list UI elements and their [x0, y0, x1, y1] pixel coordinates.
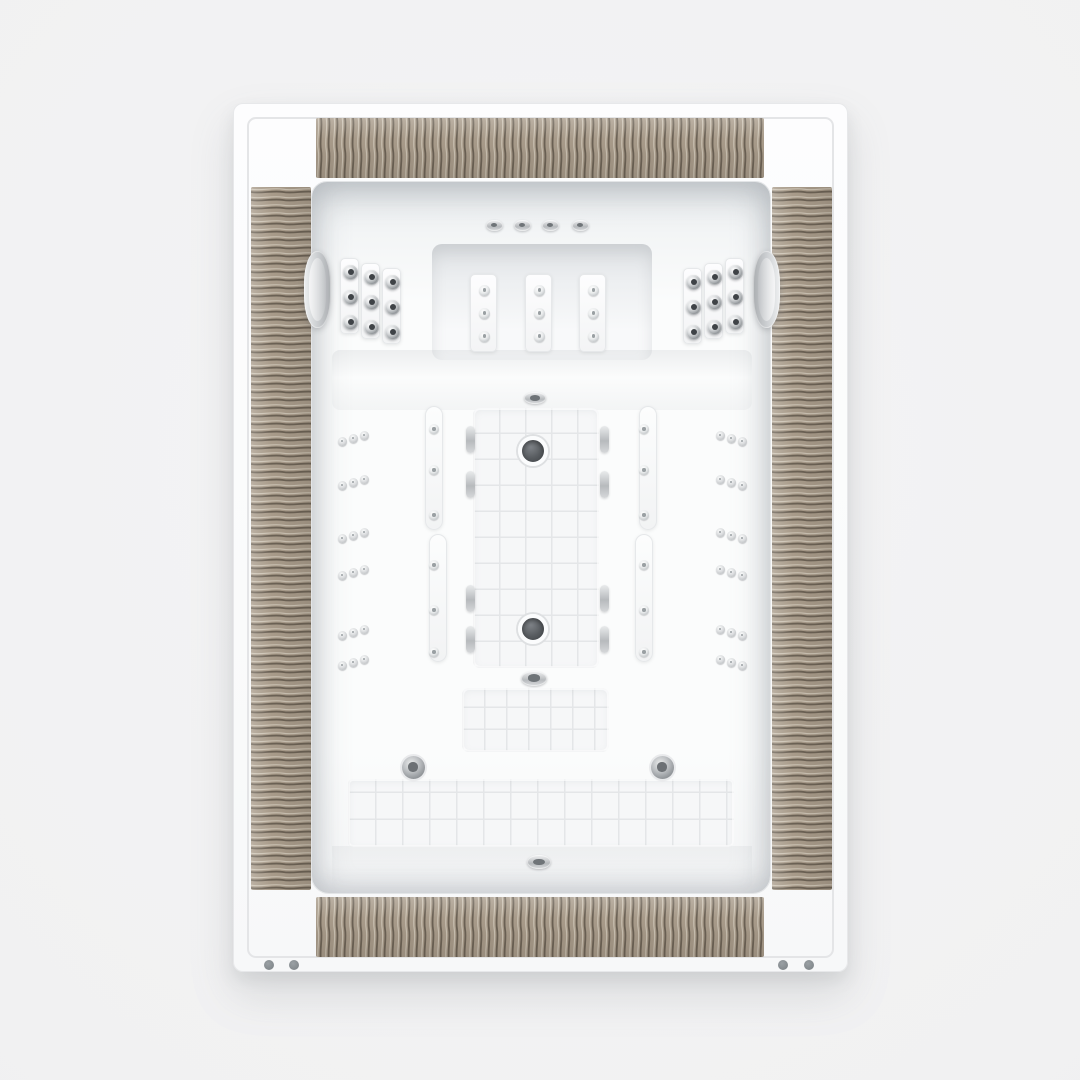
jet-center	[642, 608, 645, 611]
jet-center	[741, 664, 744, 667]
jet-center	[719, 478, 722, 481]
shoulder-jet	[364, 270, 379, 285]
jet-center	[390, 329, 396, 335]
jet-center	[741, 574, 744, 577]
basin	[311, 181, 771, 894]
mounting-dot	[804, 960, 814, 970]
back-jet-strip	[470, 274, 497, 352]
shoulder-panel-left-strip	[361, 263, 380, 339]
right-wall-jet	[716, 565, 725, 574]
jet-center	[390, 279, 396, 285]
foot-end-shading	[332, 846, 752, 892]
deck-panel-right	[772, 187, 832, 890]
left-wall-jet	[360, 528, 369, 537]
jet-center	[691, 279, 697, 285]
jet-center	[432, 563, 435, 566]
left-wall-jet	[349, 628, 358, 637]
jet-center	[352, 534, 355, 537]
shoulder-jet	[728, 290, 743, 305]
jet-center	[483, 288, 487, 292]
jet-center	[592, 334, 596, 338]
right-wall-jet	[738, 571, 747, 580]
mounting-dot	[778, 960, 788, 970]
jet-center	[719, 568, 722, 571]
back-jet	[534, 331, 545, 342]
back-jet-strip	[525, 274, 552, 352]
floor-trim-pill	[600, 585, 609, 612]
shoulder-jet	[385, 325, 400, 340]
right-wall-jet	[727, 434, 736, 443]
jet-center	[341, 634, 344, 637]
jet-center	[538, 311, 542, 315]
jet-center	[733, 319, 739, 325]
rail-left-lower	[429, 534, 447, 662]
jet-center	[348, 269, 354, 275]
jet-center	[741, 537, 744, 540]
jet-center	[363, 434, 366, 437]
jet-center	[730, 481, 733, 484]
right-wall-jet	[727, 658, 736, 667]
jet-center	[432, 650, 435, 653]
left-wall-jet	[360, 655, 369, 664]
rail-jet	[639, 605, 649, 615]
jet-center	[432, 427, 435, 430]
jet-center	[719, 628, 722, 631]
shoulder-jet	[343, 290, 358, 305]
jet-center	[390, 304, 396, 310]
jet-center	[519, 223, 526, 227]
shoulder-jet	[707, 320, 722, 335]
deck-panel-left	[251, 187, 311, 890]
shoulder-jet	[728, 315, 743, 330]
headrest-pad	[309, 258, 326, 321]
jet-center	[657, 762, 666, 771]
left-wall-jet	[338, 661, 347, 670]
mid-fitting	[521, 671, 547, 686]
floor-trim-pill	[466, 585, 475, 612]
shoulder-jet	[364, 320, 379, 335]
jet-center	[369, 274, 375, 280]
bench-panel	[348, 779, 734, 847]
jet-center	[547, 223, 554, 227]
right-wall-jet	[727, 478, 736, 487]
right-wall-jet	[738, 661, 747, 670]
headrest-pad	[758, 258, 775, 321]
rail-jet	[639, 465, 649, 475]
jet-center	[730, 571, 733, 574]
jet-center	[363, 628, 366, 631]
right-wall-jet	[716, 475, 725, 484]
rail-jet	[429, 465, 439, 475]
shoulder-jet	[364, 295, 379, 310]
back-jet	[588, 308, 599, 319]
jet-center	[538, 288, 542, 292]
product-photo-stage	[0, 0, 1080, 1080]
back-jet	[588, 285, 599, 296]
rail-jet	[429, 510, 439, 520]
headrest-left	[304, 251, 331, 328]
shoulder-jet	[343, 265, 358, 280]
jet-center	[341, 537, 344, 540]
jet-center	[592, 311, 596, 315]
shoulder-jet	[686, 275, 701, 290]
right-wall-jet	[738, 631, 747, 640]
jet-center	[348, 294, 354, 300]
shoulder-jet	[686, 300, 701, 315]
jet-center	[642, 468, 645, 471]
right-wall-jet	[738, 481, 747, 490]
jet-center	[363, 531, 366, 534]
right-wall-jet	[727, 531, 736, 540]
jet-center	[642, 650, 645, 653]
right-wall-jet	[727, 568, 736, 577]
mounting-dot	[264, 960, 274, 970]
jet-center	[712, 274, 718, 280]
jet-center	[352, 481, 355, 484]
jet-center	[691, 329, 697, 335]
shoulder-jet	[385, 300, 400, 315]
floor-trim-pill	[600, 471, 609, 498]
rail-jet	[429, 647, 439, 657]
jet-center	[730, 631, 733, 634]
fitting-center	[528, 674, 541, 681]
jet-center	[341, 664, 344, 667]
jet-center	[352, 437, 355, 440]
jet-center	[719, 531, 722, 534]
shoulder-panel-left-strip	[340, 258, 359, 334]
left-wall-jet	[338, 437, 347, 446]
jet-center	[538, 334, 542, 338]
jet-center	[741, 440, 744, 443]
jet-center	[730, 661, 733, 664]
deck-fitting	[524, 392, 546, 404]
shoulder-panel-right-strip	[725, 258, 744, 334]
rail-jet	[639, 560, 649, 570]
shoulder-panel-right-strip	[683, 268, 702, 344]
back-jet	[588, 331, 599, 342]
back-ledge-jet	[542, 220, 559, 231]
right-wall-jet	[716, 528, 725, 537]
jet-center	[592, 288, 596, 292]
back-jet	[479, 308, 490, 319]
jet-center	[341, 440, 344, 443]
jet-center	[719, 434, 722, 437]
floor-trim-pill	[466, 626, 475, 653]
jet-center	[432, 513, 435, 516]
left-wall-jet	[349, 531, 358, 540]
jet-center	[491, 223, 498, 227]
shoulder-jet	[686, 325, 701, 340]
jet-center	[352, 661, 355, 664]
jet-center	[577, 223, 584, 227]
floor-trim-pill	[600, 626, 609, 653]
left-wall-jet	[349, 568, 358, 577]
jet-center	[352, 631, 355, 634]
jet-center	[642, 513, 645, 516]
right-wall-jet	[716, 655, 725, 664]
rail-jet	[639, 647, 649, 657]
jet-center	[363, 568, 366, 571]
jet-center	[483, 334, 487, 338]
bench-jet	[402, 756, 425, 779]
left-wall-jet	[360, 565, 369, 574]
right-wall-jet	[716, 625, 725, 634]
shoulder-jet	[343, 315, 358, 330]
left-wall-jet	[360, 431, 369, 440]
jet-center	[719, 658, 722, 661]
rail-right-lower	[635, 534, 653, 662]
floor-drain	[518, 614, 548, 644]
left-wall-jet	[349, 478, 358, 487]
right-wall-jet	[727, 628, 736, 637]
jet-center	[432, 468, 435, 471]
jet-center	[483, 311, 487, 315]
front-fitting	[527, 855, 551, 869]
floor-trim-pill	[466, 426, 475, 453]
rail-jet	[639, 424, 649, 434]
jet-center	[432, 608, 435, 611]
jet-center	[691, 304, 697, 310]
deck-panel-bottom	[316, 897, 764, 957]
jet-center	[712, 324, 718, 330]
left-wall-jet	[349, 658, 358, 667]
jet-center	[363, 478, 366, 481]
jet-center	[741, 634, 744, 637]
back-jet	[479, 331, 490, 342]
shoulder-jet	[707, 270, 722, 285]
rail-jet	[429, 560, 439, 570]
back-ledge-jet	[572, 220, 589, 231]
shoulder-jet	[385, 275, 400, 290]
back-ledge-jet	[514, 220, 531, 231]
shoulder-panel-right-strip	[704, 263, 723, 339]
left-wall-jet	[360, 475, 369, 484]
left-wall-jet	[338, 534, 347, 543]
left-wall-jet	[349, 434, 358, 443]
jet-center	[712, 299, 718, 305]
rail-jet	[639, 510, 649, 520]
shoulder-jet	[707, 295, 722, 310]
jet-center	[642, 427, 645, 430]
back-jet	[534, 285, 545, 296]
left-wall-jet	[338, 481, 347, 490]
mounting-dot	[289, 960, 299, 970]
fitting-center	[533, 859, 545, 866]
shoulder-panel-left-strip	[382, 268, 401, 344]
floor-trim-pill	[600, 426, 609, 453]
right-wall-jet	[716, 431, 725, 440]
jet-center	[363, 658, 366, 661]
rail-jet	[429, 605, 439, 615]
floor-panel	[473, 408, 599, 668]
left-wall-jet	[360, 625, 369, 634]
left-wall-jet	[338, 631, 347, 640]
jet-center	[733, 269, 739, 275]
bench-jet	[651, 756, 674, 779]
headrest-right	[753, 251, 780, 328]
jet-center	[730, 437, 733, 440]
back-ledge-jet	[486, 220, 503, 231]
right-wall-jet	[738, 534, 747, 543]
jet-center	[408, 762, 417, 771]
footrest-panel	[462, 688, 609, 752]
jet-center	[348, 319, 354, 325]
fitting-center	[530, 395, 541, 401]
jet-center	[642, 563, 645, 566]
rail-jet	[429, 424, 439, 434]
jet-center	[733, 294, 739, 300]
jet-center	[741, 484, 744, 487]
shoulder-jet	[728, 265, 743, 280]
bathtub	[233, 103, 848, 972]
floor-trim-pill	[466, 471, 475, 498]
jet-center	[369, 299, 375, 305]
left-wall-jet	[338, 571, 347, 580]
jet-center	[730, 534, 733, 537]
jet-center	[369, 324, 375, 330]
jet-center	[341, 484, 344, 487]
back-jet-strip	[579, 274, 606, 352]
deck-panel-top	[316, 118, 764, 178]
floor-drain	[518, 436, 548, 466]
back-jet	[479, 285, 490, 296]
jet-center	[341, 574, 344, 577]
back-jet	[534, 308, 545, 319]
jet-center	[352, 571, 355, 574]
right-wall-jet	[738, 437, 747, 446]
